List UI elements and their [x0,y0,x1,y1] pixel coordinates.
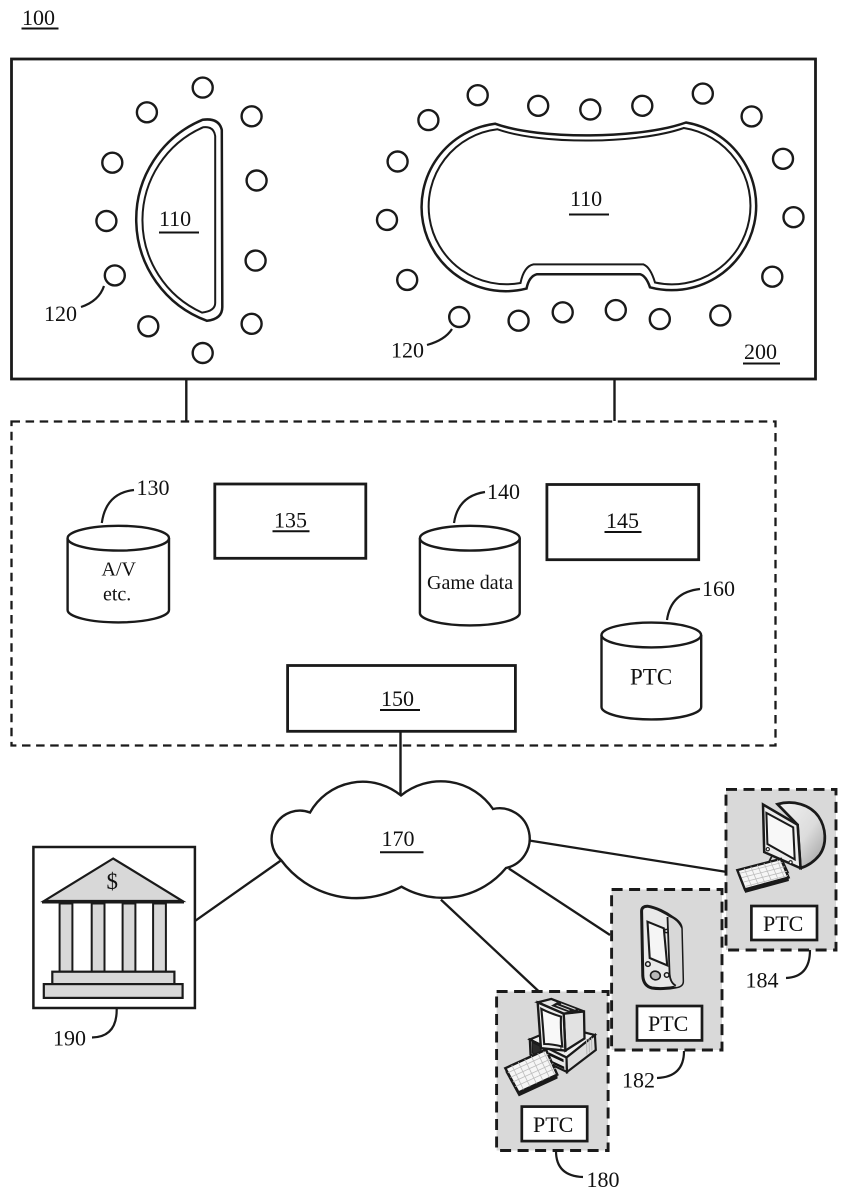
svg-text:A/V: A/V [102,559,137,581]
svg-text:120: 120 [44,301,77,326]
svg-text:PTC: PTC [630,665,672,690]
svg-text:190: 190 [53,1026,86,1051]
svg-text:110: 110 [570,186,602,211]
svg-text:110: 110 [159,206,191,231]
svg-text:184: 184 [746,968,779,993]
svg-text:PTC: PTC [763,911,803,936]
svg-text:140: 140 [487,479,520,504]
svg-text:180: 180 [587,1167,620,1192]
svg-text:Game data: Game data [427,572,513,594]
svg-text:etc.: etc. [103,584,131,606]
svg-text:PTC: PTC [533,1112,573,1137]
svg-text:$: $ [107,869,119,894]
svg-text:135: 135 [274,508,307,533]
svg-text:200: 200 [744,339,777,364]
svg-text:150: 150 [381,686,414,711]
svg-text:145: 145 [606,508,639,533]
svg-text:100: 100 [22,5,55,30]
svg-text:130: 130 [137,475,170,500]
svg-text:182: 182 [622,1068,655,1093]
svg-text:PTC: PTC [648,1011,688,1036]
svg-text:160: 160 [702,576,735,601]
svg-text:120: 120 [391,338,424,363]
svg-text:170: 170 [382,826,415,851]
